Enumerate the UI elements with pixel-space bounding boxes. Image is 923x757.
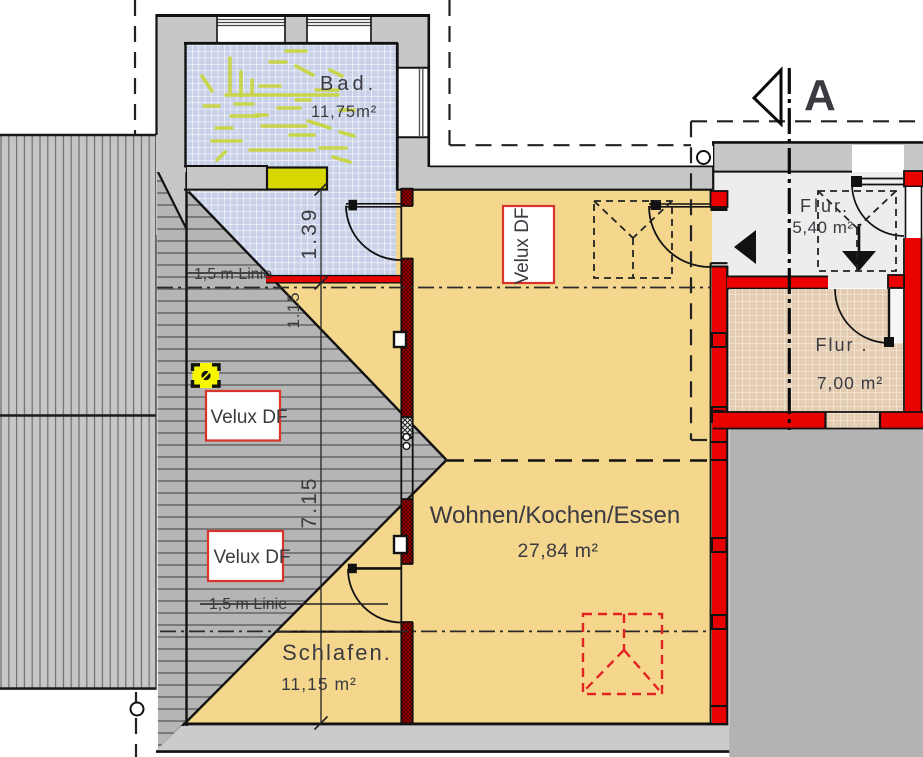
svg-text:7,00 m²: 7,00 m² (817, 373, 883, 393)
svg-text:1,5 m Linie: 1,5 m Linie (194, 266, 272, 283)
svg-text:Velux DF: Velux DF (210, 407, 287, 428)
svg-text:Velux DF: Velux DF (512, 207, 533, 284)
svg-text:11,75m²: 11,75m² (311, 103, 377, 121)
svg-text:Wohnen/Kochen/Essen: Wohnen/Kochen/Essen (430, 502, 680, 529)
svg-text:1.15: 1.15 (284, 291, 303, 328)
svg-text:A: A (804, 71, 836, 120)
svg-text:Schlafen.: Schlafen. (282, 640, 392, 665)
svg-text:1,5 m Linie: 1,5 m Linie (209, 596, 287, 613)
svg-text:1.39: 1.39 (298, 207, 321, 260)
svg-text:Velux DF: Velux DF (213, 547, 290, 568)
svg-text:11,15 m²: 11,15 m² (281, 674, 357, 694)
svg-text:Bad.: Bad. (320, 73, 377, 95)
svg-text:Flur.: Flur. (800, 196, 850, 216)
svg-text:7.15: 7.15 (298, 476, 321, 529)
svg-text:27,84 m²: 27,84 m² (518, 540, 599, 562)
svg-text:5,40 m²: 5,40 m² (792, 218, 853, 237)
svg-text:Flur .: Flur . (815, 335, 868, 355)
